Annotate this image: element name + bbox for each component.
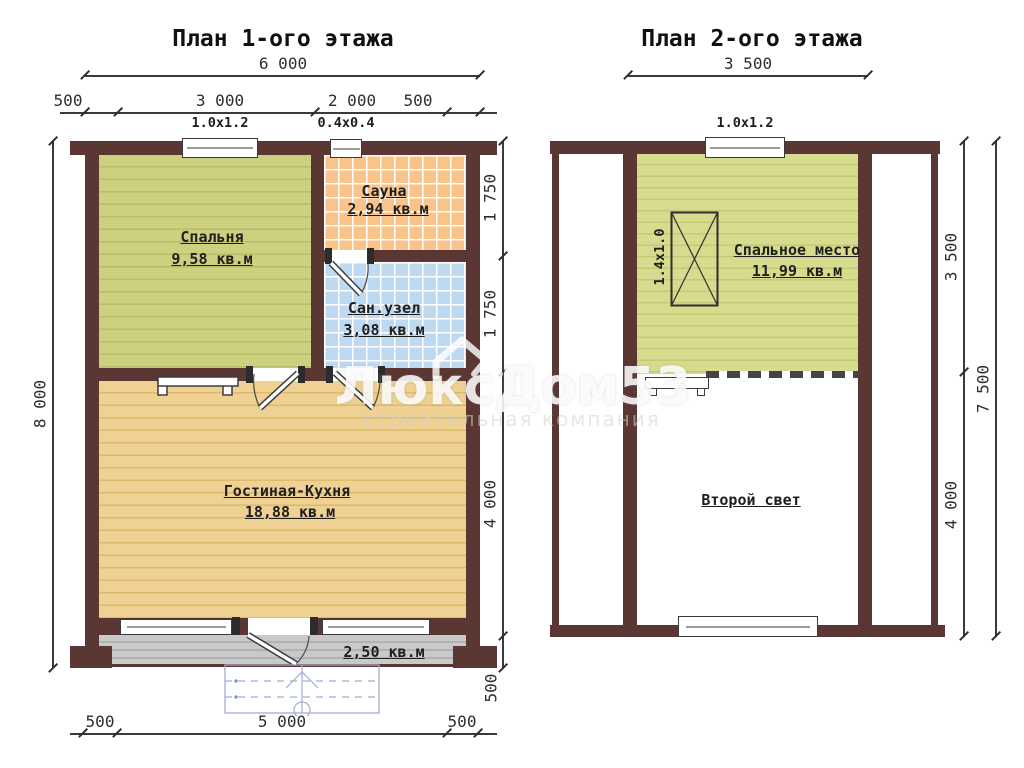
window-bedroom (182, 138, 258, 158)
plan2-title: План 2-ого этажа (641, 26, 863, 52)
plan1-dim-seg-500-right: 500 (404, 91, 433, 110)
wall-interior-vertical (311, 155, 324, 381)
plan1-dim-bottom-5000: 5 000 (258, 712, 306, 731)
plan1-dim-segments-line (60, 112, 497, 114)
plan2-dim-total-height-line (995, 141, 997, 636)
label-sleeping-area: 11,99 кв.м (752, 262, 842, 280)
plan1-dim-seg-2000: 2 000 (328, 91, 376, 110)
plan2-dim-3500: 3 500 (942, 233, 961, 281)
terrace-corner-left (70, 646, 112, 668)
plan2-dim-total-height: 7 500 (974, 365, 993, 413)
terrace-corner-right (453, 646, 497, 668)
plan1-dim-total-height-line (52, 141, 54, 668)
door-post (232, 617, 240, 635)
label-bathroom-name: Сан.узел (348, 299, 420, 317)
plan2-dim-segments-line (963, 141, 965, 636)
plan1-dim-1750-a: 1 750 (481, 174, 500, 222)
plan1-dim-4000: 4 000 (481, 480, 500, 528)
watermark-tagline: строительная компания (363, 407, 661, 431)
window-attic-top (705, 137, 785, 158)
plan1-dim-total-width: 6 000 (259, 54, 307, 73)
bench-furniture (155, 374, 241, 398)
label-sleeping-name: Спальное место (734, 241, 860, 259)
label-bedroom-name: Спальня (180, 228, 243, 246)
window-terrace-left (120, 619, 232, 635)
wall-top (70, 141, 497, 155)
label-living-name: Гостиная-Кухня (224, 482, 350, 500)
plan2-dim-4000: 4 000 (942, 481, 961, 529)
plan1-dim-total-height: 8 000 (31, 380, 50, 428)
plan2-dim-total-width-line (628, 75, 868, 77)
window-terrace-right (322, 619, 430, 635)
label-terrace-area: 2,50 кв.м (343, 643, 424, 661)
label-bathroom-area: 3,08 кв.м (343, 321, 424, 339)
window-second-light (678, 616, 818, 637)
plan2-wall-right (858, 141, 872, 637)
label-bed-size: 1.4x1.0 (652, 229, 668, 286)
plan1-dim-seg-500-left: 500 (54, 91, 83, 110)
wall-left (85, 141, 99, 668)
plan1-dim-seg-3000: 3 000 (196, 91, 244, 110)
plan1-title: План 1-ого этажа (172, 26, 394, 52)
window-sauna (330, 139, 362, 158)
stairs-drawing (224, 664, 380, 716)
label-second-light: Второй свет (701, 491, 800, 509)
plan1-dim-1750-b: 1 750 (481, 290, 500, 338)
door-bathroom (327, 260, 377, 304)
loft-railing (706, 371, 858, 378)
bed-drawing (670, 211, 719, 307)
floor-plans-canvas: План 1-ого этажа 6 000 500 3 000 2 000 5… (0, 0, 1024, 768)
plan1-window2-size-label: 0.4x0.4 (318, 115, 375, 131)
plan1-window1-size-label: 1.0x1.2 (192, 115, 249, 131)
plan1-dim-bottom-500-left: 500 (86, 712, 115, 731)
plan1-dim-bottom-500-right: 500 (448, 712, 477, 731)
label-sauna-area: 2,94 кв.м (347, 200, 428, 218)
plan1-dim-total-width-line (85, 75, 480, 77)
plan1-dim-bottom-line (70, 733, 497, 735)
plan2-dim-total-width: 3 500 (724, 54, 772, 73)
plan2-window-size-label: 1.0x1.2 (717, 115, 774, 131)
label-living-area: 18,88 кв.м (245, 503, 335, 521)
plan1-dim-500-bottom: 500 (482, 674, 501, 703)
door-bedroom (246, 368, 306, 416)
label-bedroom-area: 9,58 кв.м (171, 250, 252, 268)
plan2-wall-outer-right (931, 141, 938, 637)
label-sauna-name: Сауна (361, 182, 406, 200)
